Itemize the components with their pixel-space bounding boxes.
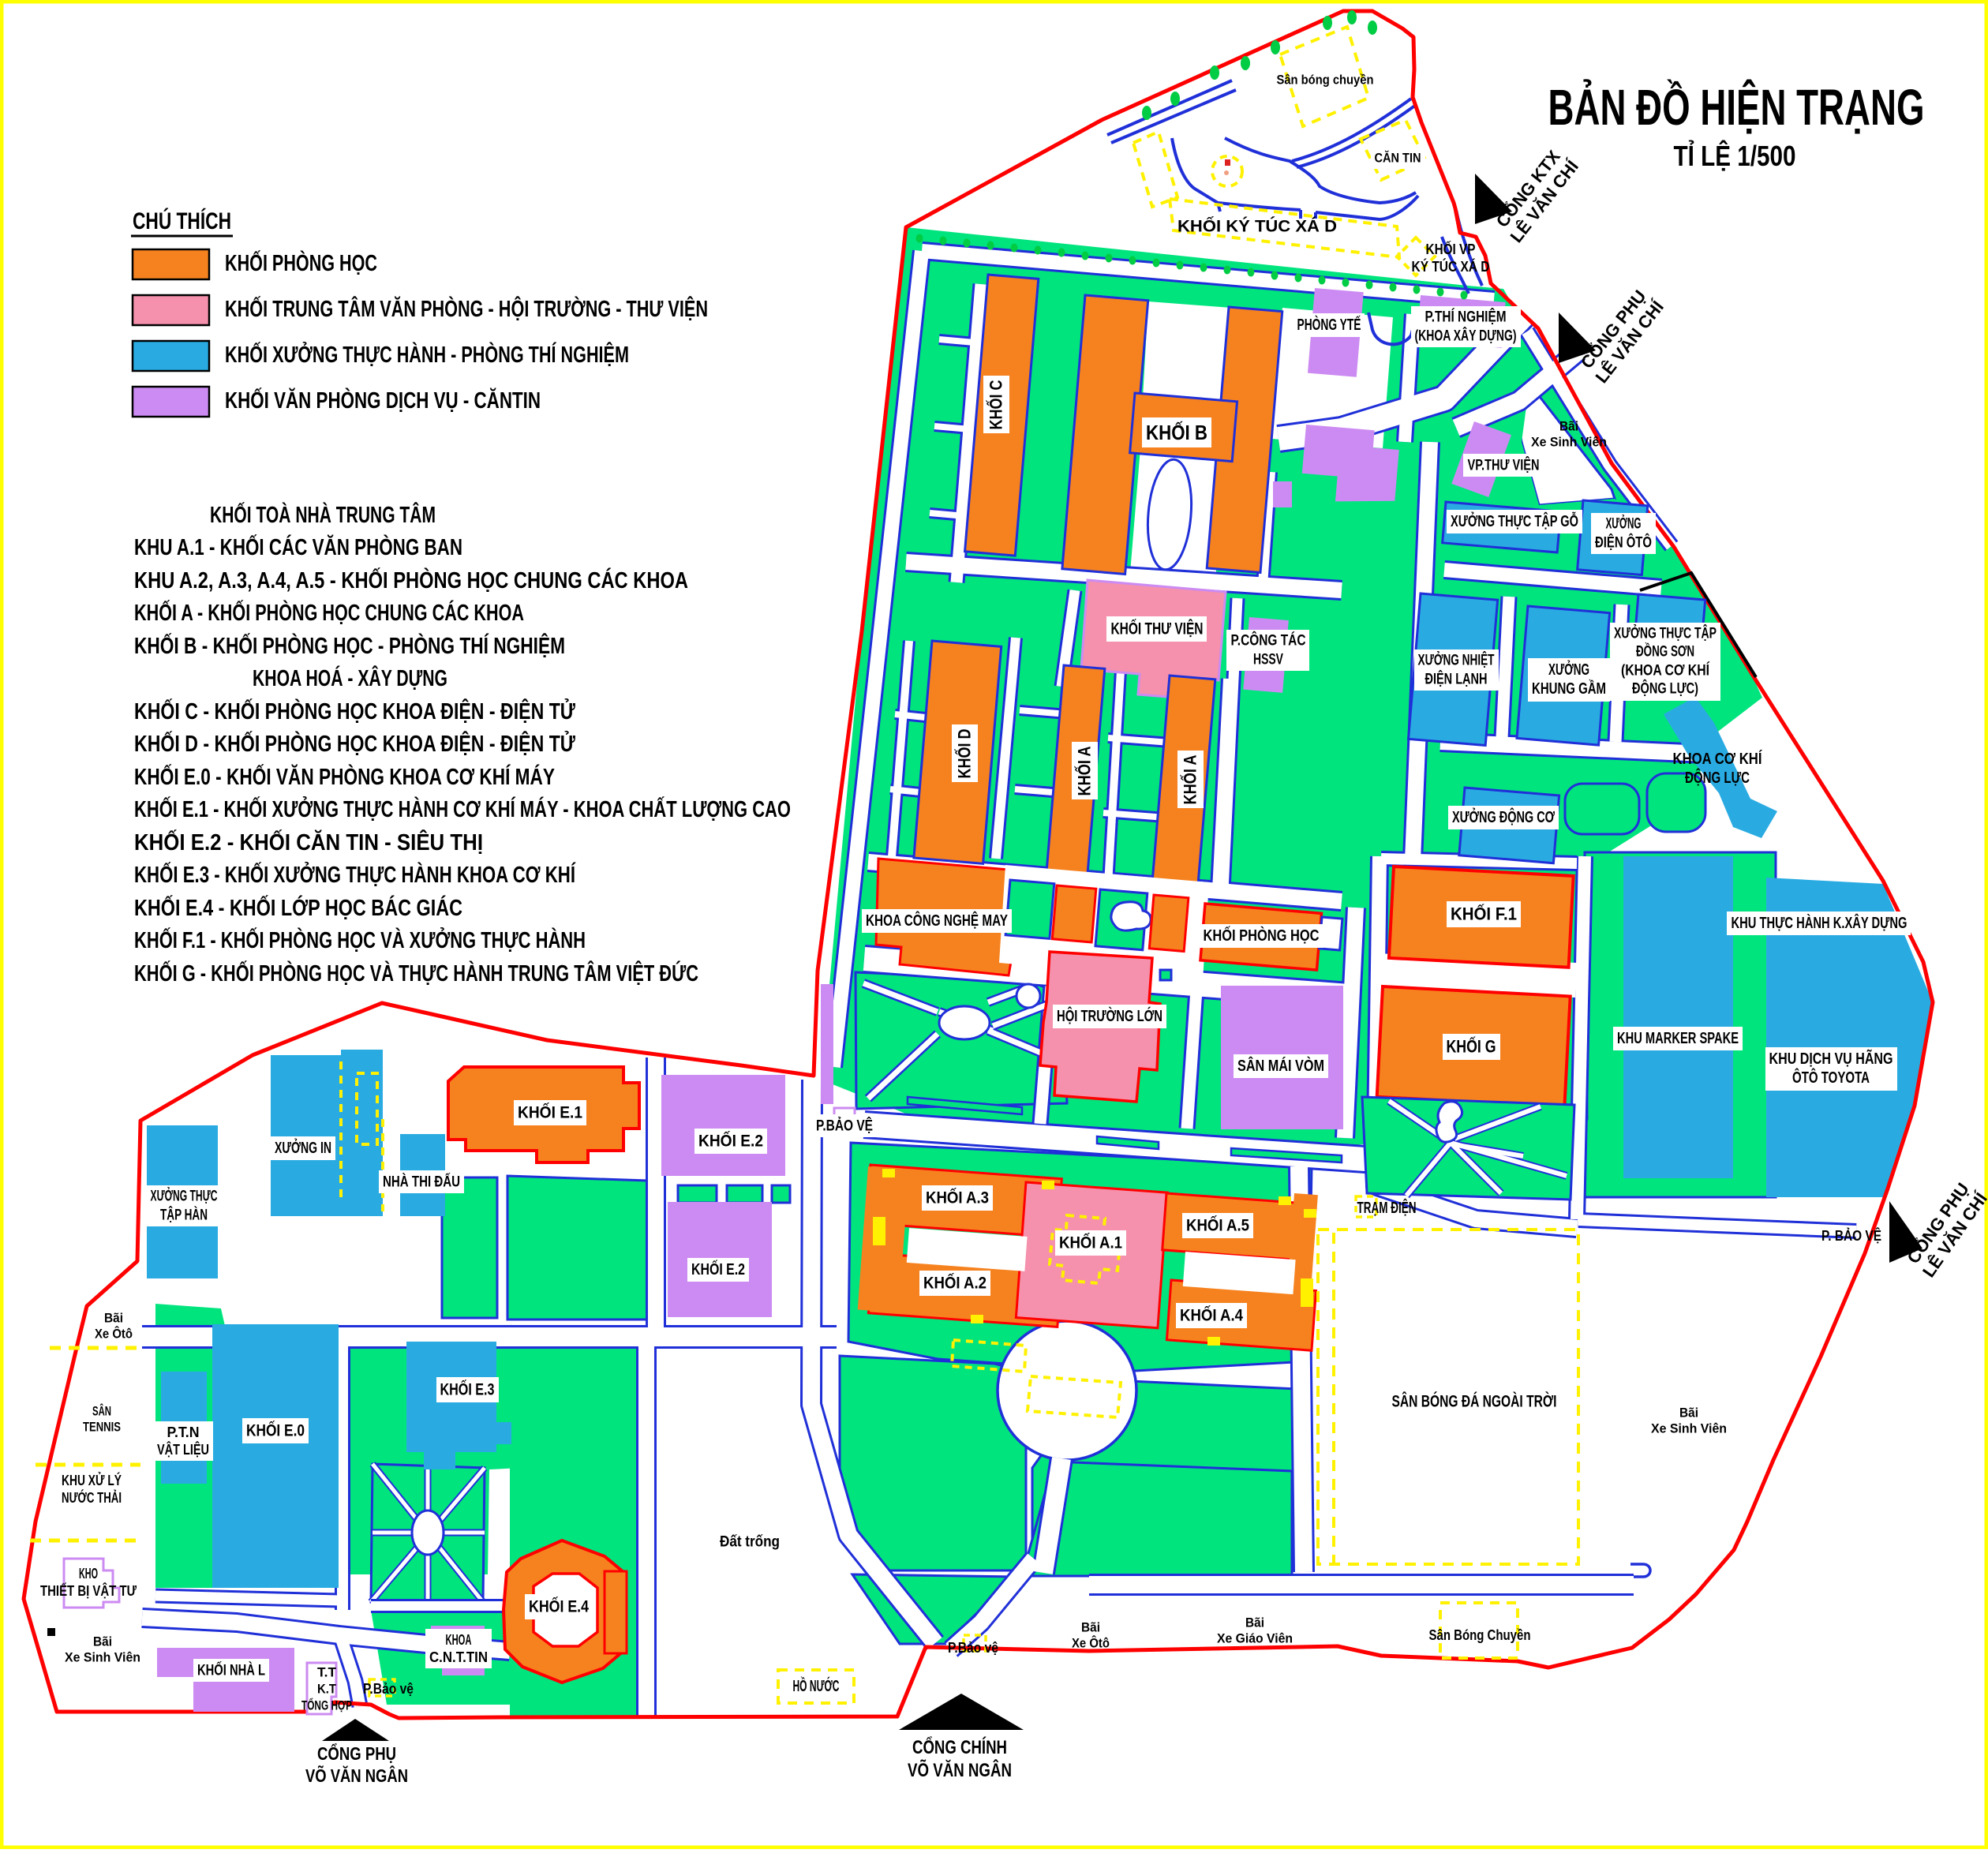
svg-text:KHỐI A.4: KHỐI A.4 [1180, 1306, 1243, 1325]
svg-text:XƯỞNG: XƯỞNG [1606, 515, 1642, 533]
svg-text:KHỐI E.1 - KHỐI XƯỞNG THỰC HÀN: KHỐI E.1 - KHỐI XƯỞNG THỰC HÀNH CƠ KHÍ M… [134, 795, 791, 822]
svg-text:T.T: T.T [317, 1665, 337, 1680]
svg-text:VÕ VĂN NGÂN: VÕ VĂN NGÂN [305, 1765, 408, 1786]
svg-text:Xe Giáo Viên: Xe Giáo Viên [1217, 1631, 1293, 1646]
svg-text:KHỐI A.2: KHỐI A.2 [923, 1274, 987, 1293]
svg-text:KHU A.2, A.3, A.4, A.5 - KHỐI: KHU A.2, A.3, A.4, A.5 - KHỐI PHÒNG HỌC … [134, 567, 688, 593]
svg-text:P.Bảo vệ: P.Bảo vệ [363, 1681, 414, 1697]
svg-text:KHỐI E.3: KHỐI E.3 [440, 1380, 495, 1399]
svg-text:BẢN ĐỒ HIỆN TRẠNG: BẢN ĐỒ HIỆN TRẠNG [1548, 78, 1925, 136]
svg-text:Bãi: Bãi [1559, 419, 1578, 434]
svg-text:VÕ VĂN NGÂN: VÕ VĂN NGÂN [908, 1759, 1012, 1781]
svg-text:KHỐI E.2: KHỐI E.2 [691, 1260, 745, 1278]
svg-text:KHU MARKER SPAKE: KHU MARKER SPAKE [1617, 1030, 1739, 1047]
svg-text:KHỐI F.1: KHỐI F.1 [1451, 904, 1517, 924]
svg-text:KHỐI G: KHỐI G [1447, 1036, 1496, 1057]
svg-text:KHỐI VĂN PHÒNG DỊCH VỤ - CĂNTI: KHỐI VĂN PHÒNG DỊCH VỤ - CĂNTIN [225, 387, 541, 414]
svg-text:KHOA CƠ KHÍ: KHOA CƠ KHÍ [1673, 750, 1762, 768]
svg-text:KHỐI B - KHỐI PHÒNG HỌC - PHÒN: KHỐI B - KHỐI PHÒNG HỌC - PHÒNG THÍ NGHI… [134, 632, 565, 659]
svg-text:(KHOA CƠ KHÍ: (KHOA CƠ KHÍ [1621, 662, 1710, 679]
svg-text:KHỐI A: KHỐI A [1074, 746, 1095, 795]
svg-text:ĐỒNG SƠN: ĐỒNG SƠN [1636, 643, 1694, 661]
svg-text:CỔNG CHÍNH: CỔNG CHÍNH [912, 1736, 1007, 1758]
svg-text:KHỐI TRUNG TÂM VĂN PHÒNG - HỘI: KHỐI TRUNG TÂM VĂN PHÒNG - HỘI TRƯỜNG - … [225, 295, 708, 322]
svg-text:SÂN BÓNG ĐÁ NGOÀI TRỜI: SÂN BÓNG ĐÁ NGOÀI TRỜI [1392, 1392, 1557, 1411]
svg-text:KHỐI PHÒNG HỌC: KHỐI PHÒNG HỌC [225, 249, 377, 276]
svg-text:P.BẢO VỆ: P.BẢO VỆ [816, 1117, 873, 1135]
svg-text:KHỐI E.2: KHỐI E.2 [698, 1132, 763, 1151]
svg-text:KHỐI E.1: KHỐI E.1 [518, 1103, 582, 1122]
svg-text:KHỐI D - KHỐI PHÒNG HỌC KHOA Đ: KHỐI D - KHỐI PHÒNG HỌC KHOA ĐIỆN - ĐIỆN… [134, 730, 576, 757]
svg-text:KHỐI A - KHỐI PHÒNG HỌC CHUNG: KHỐI A - KHỐI PHÒNG HỌC CHUNG CÁC KHOA [134, 599, 524, 626]
svg-text:TỔNG HỢP: TỔNG HỢP [301, 1698, 352, 1713]
svg-text:P.Bảo vệ: P.Bảo vệ [948, 1640, 998, 1656]
svg-text:KHỐI E.0: KHỐI E.0 [246, 1421, 305, 1440]
svg-text:KHOA HOÁ - XÂY DỰNG: KHOA HOÁ - XÂY DỰNG [253, 664, 447, 691]
svg-text:P.T.N: P.T.N [167, 1424, 200, 1440]
svg-text:NHÀ THI ĐẤU: NHÀ THI ĐẤU [383, 1174, 460, 1191]
svg-text:Bãi: Bãi [1081, 1620, 1100, 1635]
svg-text:VP.THƯ VIỆN: VP.THƯ VIỆN [1468, 457, 1540, 474]
svg-text:KHỐI C: KHỐI C [986, 380, 1006, 429]
svg-text:TENNIS: TENNIS [83, 1420, 121, 1435]
svg-text:KHU THỰC HÀNH K.XÂY DỰNG: KHU THỰC HÀNH K.XÂY DỰNG [1732, 913, 1908, 932]
svg-text:KHỐI E.4 - KHỐI LỚP HỌC BÁC GI: KHỐI E.4 - KHỐI LỚP HỌC BÁC GIÁC [134, 894, 462, 921]
svg-text:XƯỞNG THỰC TẬP: XƯỞNG THỰC TẬP [1614, 625, 1717, 642]
svg-text:Xe Sinh Viên: Xe Sinh Viên [1651, 1421, 1727, 1436]
svg-text:XƯỞNG: XƯỞNG [1548, 660, 1589, 679]
svg-text:KHỐI XƯỞNG THỰC HÀNH - PHÒNG T: KHỐI XƯỞNG THỰC HÀNH - PHÒNG THÍ NGHIỆM [225, 341, 629, 368]
svg-text:SÂN: SÂN [92, 1404, 111, 1419]
svg-text:HỘI TRƯỜNG LỚN: HỘI TRƯỜNG LỚN [1057, 1006, 1162, 1025]
svg-text:KÝ TÚC XÁ D: KÝ TÚC XÁ D [1412, 258, 1490, 275]
svg-text:XƯỞNG NHIỆT: XƯỞNG NHIỆT [1418, 652, 1495, 669]
svg-text:VẬT LIỆU: VẬT LIỆU [157, 1441, 209, 1458]
svg-text:Sân bóng chuyền: Sân bóng chuyền [1277, 73, 1374, 88]
svg-text:KHỐI TOÀ NHÀ TRUNG TÂM: KHỐI TOÀ NHÀ TRUNG TÂM [210, 501, 436, 528]
svg-text:PHÒNG YTẾ: PHÒNG YTẾ [1297, 315, 1361, 334]
svg-text:Xe Ôtô: Xe Ôtô [95, 1327, 133, 1342]
svg-text:SÂN MÁI VÒM: SÂN MÁI VÒM [1237, 1056, 1324, 1075]
svg-text:C.N.T.TIN: C.N.T.TIN [429, 1649, 488, 1665]
svg-text:K.T: K.T [317, 1682, 337, 1697]
svg-text:Xe Sinh Viên: Xe Sinh Viên [65, 1650, 140, 1665]
svg-text:P. BẢO VỆ: P. BẢO VỆ [1821, 1227, 1881, 1244]
svg-text:XƯỞNG ĐỘNG CƠ: XƯỞNG ĐỘNG CƠ [1452, 807, 1556, 826]
svg-text:KHỐI C - KHỐI PHÒNG HỌC KHOA Đ: KHỐI C - KHỐI PHÒNG HỌC KHOA ĐIỆN - ĐIỆN… [134, 698, 576, 724]
svg-text:XƯỞNG THỰC TẬP GỖ: XƯỞNG THỰC TẬP GỖ [1451, 511, 1578, 530]
svg-text:XƯỞNG THỰC: XƯỞNG THỰC [151, 1188, 218, 1205]
svg-text:KHU DỊCH VỤ HÃNG: KHU DỊCH VỤ HÃNG [1769, 1050, 1893, 1068]
svg-text:(KHOA XÂY DỰNG): (KHOA XÂY DỰNG) [1415, 328, 1517, 345]
svg-text:P.CÔNG TÁC: P.CÔNG TÁC [1231, 632, 1306, 649]
svg-text:KHỐI THƯ VIỆN: KHỐI THƯ VIỆN [1111, 620, 1204, 638]
svg-text:CHÚ THÍCH: CHÚ THÍCH [133, 208, 231, 234]
svg-text:Đất trống: Đất trống [720, 1534, 780, 1551]
svg-text:KHOA: KHOA [446, 1632, 472, 1648]
svg-text:KHỐI A.5: KHỐI A.5 [1186, 1216, 1249, 1235]
svg-text:KHỐI VP: KHỐI VP [1426, 241, 1476, 257]
svg-text:KHỐI A.3: KHỐI A.3 [926, 1189, 989, 1207]
svg-text:ĐỘNG LỰC: ĐỘNG LỰC [1685, 768, 1750, 787]
svg-text:Xe Ôtô: Xe Ôtô [1072, 1636, 1110, 1651]
svg-text:KHỐI D: KHỐI D [954, 729, 975, 779]
svg-text:Bãi: Bãi [93, 1634, 112, 1649]
svg-text:KHUNG GẦM: KHUNG GẦM [1532, 679, 1606, 698]
svg-text:CỔNG PHỤ: CỔNG PHỤ [317, 1743, 396, 1764]
svg-text:ĐIỆN ÔTÔ: ĐIỆN ÔTÔ [1595, 534, 1652, 552]
svg-text:KHỐI E.0 - KHỐI VĂN PHÒNG KHOA: KHỐI E.0 - KHỐI VĂN PHÒNG KHOA CƠ KHÍ MÁ… [134, 763, 555, 790]
svg-text:KHỐI A.1: KHỐI A.1 [1059, 1233, 1122, 1252]
svg-text:KHOA CÔNG NGHỆ MAY: KHOA CÔNG NGHỆ MAY [866, 911, 1008, 930]
svg-text:P.THÍ NGHIỆM: P.THÍ NGHIỆM [1425, 309, 1507, 326]
svg-text:NƯỚC THẢI: NƯỚC THẢI [62, 1489, 122, 1506]
svg-text:KHO: KHO [79, 1566, 98, 1582]
svg-text:Bãi: Bãi [104, 1311, 123, 1326]
svg-text:KHỐI G - KHỐI PHÒNG HỌC VÀ THỰ: KHỐI G - KHỐI PHÒNG HỌC VÀ THỰC HÀNH TRU… [134, 960, 698, 986]
svg-text:Bãi: Bãi [1245, 1615, 1264, 1630]
svg-text:KHỐI KÝ TÚC XÁ D: KHỐI KÝ TÚC XÁ D [1177, 217, 1337, 236]
svg-text:KHỐI PHÒNG HỌC: KHỐI PHÒNG HỌC [1204, 926, 1320, 945]
svg-text:CĂN TIN: CĂN TIN [1375, 151, 1421, 166]
svg-text:HỒ NƯỚC: HỒ NƯỚC [793, 1676, 840, 1695]
svg-text:KHỐI F.1 - KHỐI PHÒNG HỌC VÀ X: KHỐI F.1 - KHỐI PHÒNG HỌC VÀ XƯỞNG THỰC … [134, 926, 586, 953]
svg-text:TRẠM ĐIỆN: TRẠM ĐIỆN [1357, 1198, 1417, 1217]
svg-text:Sân Bóng Chuyền: Sân Bóng Chuyền [1429, 1627, 1531, 1643]
svg-text:KHU A.1 - KHỐI CÁC VĂN PHÒNG B: KHU A.1 - KHỐI CÁC VĂN PHÒNG BAN [134, 533, 462, 560]
svg-text:XƯỞNG IN: XƯỞNG IN [275, 1138, 331, 1157]
svg-text:KHỐI A: KHỐI A [1180, 754, 1200, 804]
svg-text:KHỐI E.3 - KHỐI XƯỞNG THỰC HÀN: KHỐI E.3 - KHỐI XƯỞNG THỰC HÀNH KHOA CƠ … [134, 861, 576, 888]
svg-text:ÔTÔ TOYOTA: ÔTÔ TOYOTA [1792, 1068, 1870, 1087]
svg-text:ĐIỆN LẠNH: ĐIỆN LẠNH [1425, 671, 1488, 688]
svg-text:KHU XỬ LÝ: KHU XỬ LÝ [62, 1472, 122, 1488]
svg-text:Xe Sinh Viên: Xe Sinh Viên [1531, 435, 1607, 450]
svg-text:TỈ LỆ 1/500: TỈ LỆ 1/500 [1674, 139, 1796, 172]
svg-text:Bãi: Bãi [1679, 1406, 1698, 1421]
svg-text:ĐỘNG LỰC): ĐỘNG LỰC) [1632, 680, 1698, 698]
svg-text:THIẾT BỊ VẬT TƯ: THIẾT BỊ VẬT TƯ [40, 1582, 137, 1599]
svg-text:HSSV: HSSV [1253, 652, 1283, 668]
svg-text:KHỐI B: KHỐI B [1146, 421, 1207, 444]
svg-text:TẬP HÀN: TẬP HÀN [160, 1207, 208, 1224]
svg-text:KHỐI E.2 - KHỐI CĂN TIN - SIÊU: KHỐI E.2 - KHỐI CĂN TIN - SIÊU THỊ [134, 829, 483, 855]
svg-text:KHỐI E.4: KHỐI E.4 [529, 1597, 589, 1616]
svg-text:KHỐI NHÀ L: KHỐI NHÀ L [197, 1662, 265, 1679]
